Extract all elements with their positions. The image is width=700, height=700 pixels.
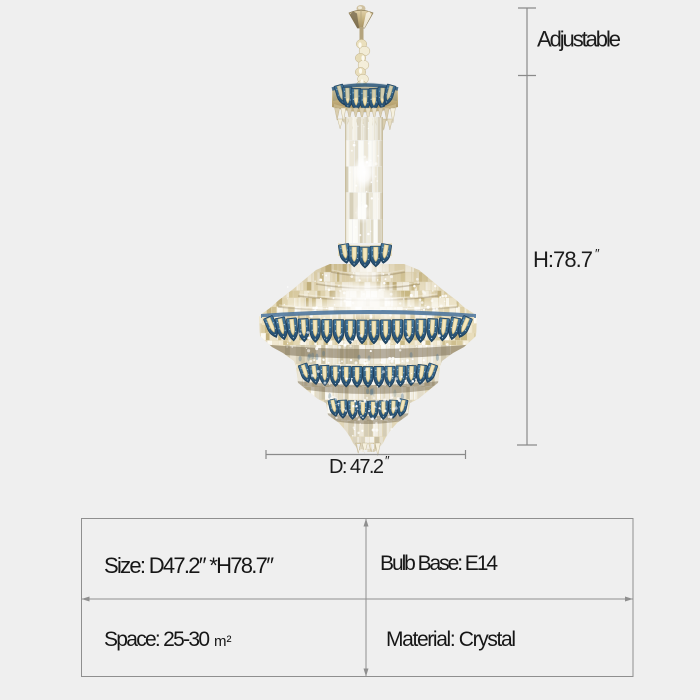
svg-text:″: ″ (595, 246, 600, 261)
svg-text:Space: 25-30: Space: 25-30 (104, 628, 210, 651)
svg-text:″: ″ (385, 453, 390, 468)
svg-text:H:78.7: H:78.7 (533, 247, 593, 272)
svg-text:Material: Crystal: Material: Crystal (386, 628, 516, 651)
svg-text:Size: D47.2″ *H78.7″: Size: D47.2″ *H78.7″ (104, 553, 274, 578)
svg-text:m²: m² (214, 633, 232, 650)
svg-text:Bulb Base: E14: Bulb Base: E14 (380, 552, 498, 575)
svg-text:Adjustable: Adjustable (537, 27, 621, 52)
svg-text:D: 47.2: D: 47.2 (329, 456, 384, 478)
